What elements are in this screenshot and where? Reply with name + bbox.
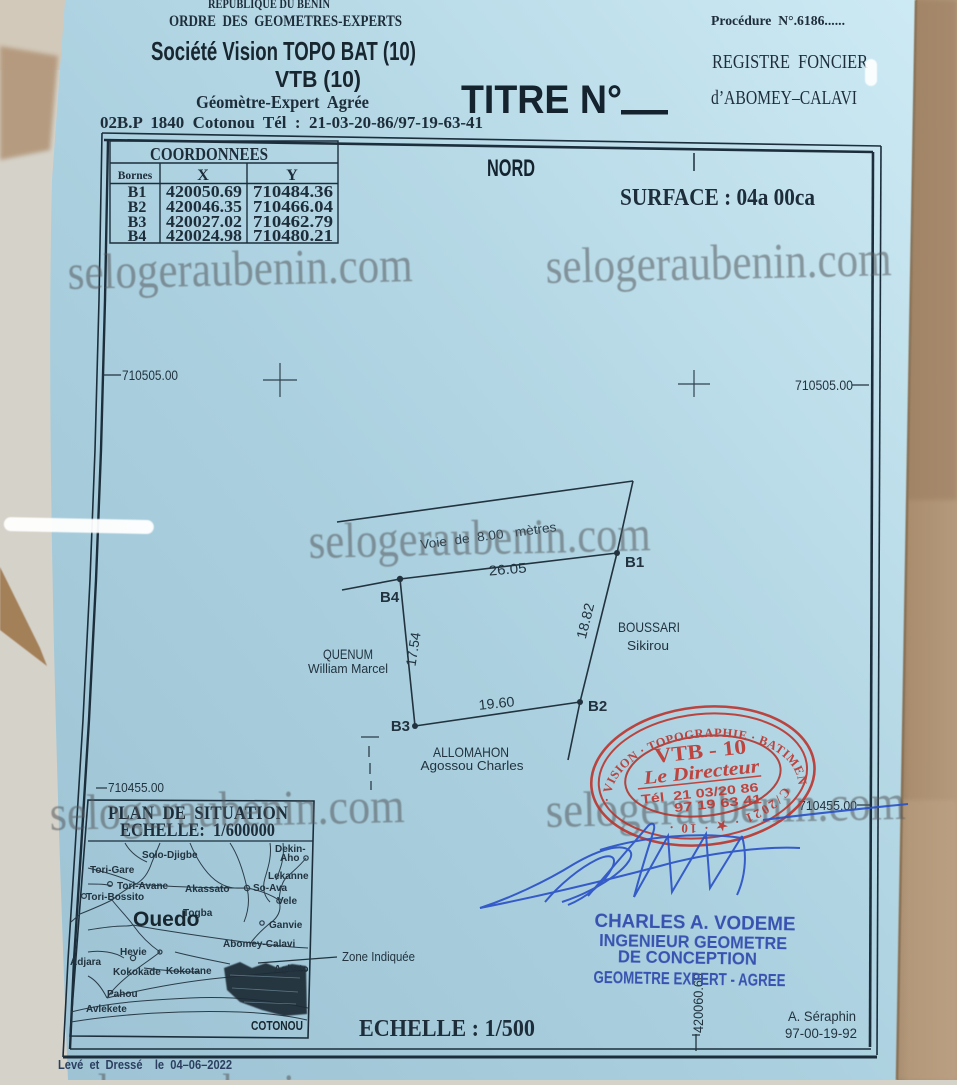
svg-text:REPUBLIQUE DU BENIN: REPUBLIQUE DU BENIN bbox=[208, 0, 330, 11]
svg-text:710505.00: 710505.00 bbox=[795, 378, 853, 393]
svg-text:Avlekete: Avlekete bbox=[86, 1004, 127, 1015]
svg-text:Akassato: Akassato bbox=[185, 884, 229, 895]
svg-text:TITRE N°: TITRE N° bbox=[461, 78, 622, 122]
svg-text:Kokokade: Kokokade bbox=[113, 967, 161, 978]
svg-text:Zone Indiquée: Zone Indiquée bbox=[342, 949, 415, 964]
svg-text:Agbato: Agbato bbox=[274, 964, 308, 975]
svg-text:Aho: Aho bbox=[280, 853, 299, 864]
svg-text:NORD: NORD bbox=[487, 155, 535, 182]
svg-text:So-Ava: So-Ava bbox=[253, 883, 288, 894]
svg-text:COTONOU: COTONOU bbox=[251, 1018, 303, 1033]
svg-text:Tori-Bossito: Tori-Bossito bbox=[86, 892, 144, 903]
svg-text:Adjara: Adjara bbox=[70, 957, 102, 968]
svg-text:DE CONCEPTION: DE CONCEPTION bbox=[618, 946, 757, 968]
svg-text:Société Vision TOPO BAT (10): Société Vision TOPO BAT (10) bbox=[151, 36, 416, 66]
svg-text:BOUSSARI: BOUSSARI bbox=[618, 619, 680, 635]
svg-text:A. Séraphin: A. Séraphin bbox=[788, 1009, 856, 1024]
svg-text:Procédure N°.6186......: Procédure N°.6186...... bbox=[711, 13, 845, 28]
svg-text:B2: B2 bbox=[588, 698, 607, 715]
svg-text:02B.P 1840 Cotonou Tél :: 02B.P 1840 Cotonou Tél : 21-03-20-86/97-… bbox=[100, 113, 483, 132]
svg-text:selogeraubenin.com: selogeraubenin.com bbox=[49, 777, 405, 841]
svg-text:Sikirou: Sikirou bbox=[627, 638, 669, 653]
svg-text:GEOMETRE EXPERT - AGREE: GEOMETRE EXPERT - AGREE bbox=[593, 967, 785, 990]
svg-text:selogeraubenin.com: selogeraubenin.com bbox=[308, 505, 651, 569]
svg-text:Pahou: Pahou bbox=[107, 989, 138, 1000]
svg-text:COORDONNEES: COORDONNEES bbox=[150, 144, 268, 164]
svg-text:Kokotane: Kokotane bbox=[166, 966, 212, 977]
svg-text:Lekanne: Lekanne bbox=[268, 871, 309, 882]
svg-text:Ouedo: Ouedo bbox=[133, 908, 200, 931]
svg-text:selogeraubenin.com: selogeraubenin.com bbox=[63, 1063, 398, 1080]
svg-text:Géomètre-Expert Agrée: Géomètre-Expert Agrée bbox=[196, 92, 369, 112]
svg-text:Ganvie: Ganvie bbox=[269, 920, 303, 931]
svg-text:William Marcel: William Marcel bbox=[308, 661, 388, 676]
svg-text:97-00-19-92: 97-00-19-92 bbox=[785, 1026, 857, 1041]
svg-text:B4: B4 bbox=[380, 589, 400, 606]
svg-text:Solo-Djigbe: Solo-Djigbe bbox=[142, 850, 198, 861]
svg-text:selogeraubenin.com: selogeraubenin.com bbox=[67, 236, 413, 300]
svg-text:Abomey-Calavi: Abomey-Calavi bbox=[223, 939, 295, 950]
svg-text:Bornes: Bornes bbox=[118, 170, 153, 182]
svg-text:d’ABOMEY–CALAVI: d’ABOMEY–CALAVI bbox=[711, 87, 857, 109]
svg-text:VTB (10): VTB (10) bbox=[275, 66, 361, 92]
svg-text:ORDRE DES GEOMETRES-EXPERTS: ORDRE DES GEOMETRES-EXPERTS bbox=[169, 13, 402, 30]
svg-text:Vele: Vele bbox=[277, 896, 297, 907]
svg-text:Agossou Charles: Agossou Charles bbox=[421, 758, 525, 773]
svg-text:Tori-Gare: Tori-Gare bbox=[90, 865, 135, 876]
svg-text:Hevie: Hevie bbox=[120, 947, 147, 958]
svg-text:710505.00: 710505.00 bbox=[122, 368, 178, 383]
svg-text:ECHELLE : 1/500: ECHELLE : 1/500 bbox=[359, 1016, 535, 1042]
svg-text:selogeraubenin.com: selogeraubenin.com bbox=[545, 230, 892, 294]
svg-text:QUENUM: QUENUM bbox=[323, 646, 373, 662]
svg-text:REGISTRE FONCIER: REGISTRE FONCIER bbox=[712, 51, 869, 73]
svg-text:SURFACE : 04a 00ca: SURFACE : 04a 00ca bbox=[620, 185, 815, 211]
svg-text:Tori-Avane: Tori-Avane bbox=[117, 881, 169, 892]
svg-text:B3: B3 bbox=[391, 718, 410, 735]
